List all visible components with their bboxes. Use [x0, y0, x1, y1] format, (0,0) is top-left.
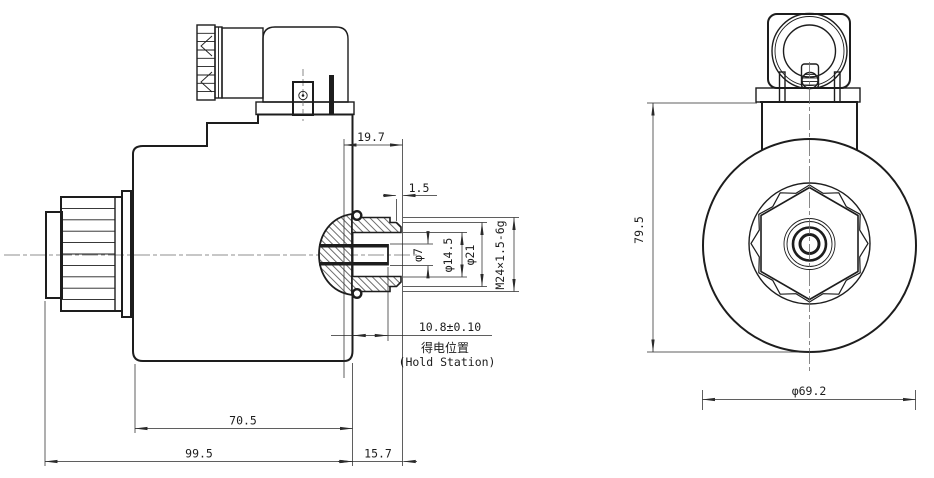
o-ring-bottom	[353, 289, 362, 298]
gland-knurled-nut	[197, 25, 215, 100]
connector-housing	[263, 27, 348, 102]
knob-flange	[122, 191, 131, 317]
armature-tube-section	[319, 211, 401, 298]
terminal-pin	[329, 75, 334, 114]
dim-tip-chamfer: 1.5	[409, 181, 430, 195]
side-view: 19.7 1.5 φ7 φ14.5 φ21 M	[4, 25, 519, 466]
technical-drawing-page: 19.7 1.5 φ7 φ14.5 φ21 M	[0, 0, 934, 478]
dim-bore-diameter: φ14.5	[441, 238, 455, 273]
front-base-plate	[756, 88, 860, 102]
dim-tip-diameter: φ21	[463, 245, 477, 266]
dim-coil-length: 70.5	[229, 414, 257, 428]
dim-body-height: 79.5	[632, 216, 646, 244]
pin-bore-wall-top	[319, 244, 388, 248]
dim-total-length: 99.5	[185, 447, 213, 461]
gland-knurl-lines	[197, 33, 215, 92]
hold-station-label-en: (Hold Station)	[399, 355, 496, 369]
solenoid-drawing-svg: 19.7 1.5 φ7 φ14.5 φ21 M	[0, 0, 934, 478]
o-ring-top	[353, 211, 362, 220]
coil-body-outline	[133, 115, 353, 362]
front-view-dimensions: 79.5 φ69.2	[632, 103, 916, 410]
dim-thread-spec: M24×1.5-6g	[493, 220, 507, 289]
nut-dome-section	[319, 214, 352, 295]
side-view-dimensions: 19.7 1.5 φ7 φ14.5 φ21 M	[45, 130, 519, 466]
dim-pin-diameter: φ7	[411, 248, 425, 262]
front-view: 79.5 φ69.2	[632, 14, 916, 411]
dim-tube-length: 15.7	[364, 447, 392, 461]
pin-bore-wall-bottom	[319, 262, 388, 266]
din-connector-side	[197, 25, 354, 121]
knob-knurl-ribs	[62, 208, 115, 299]
cable-gland-body	[222, 28, 263, 98]
front-top-block	[756, 88, 860, 150]
dim-body-diameter: φ69.2	[792, 384, 827, 398]
override-knob	[46, 191, 131, 317]
din-connector-front	[768, 14, 850, 103]
dim-tube-protrusion: 19.7	[357, 130, 385, 144]
connector-base-plate	[256, 102, 354, 115]
dim-stroke-position: 10.8±0.10	[419, 320, 481, 334]
hold-station-label-cn: 得电位置	[421, 340, 469, 355]
